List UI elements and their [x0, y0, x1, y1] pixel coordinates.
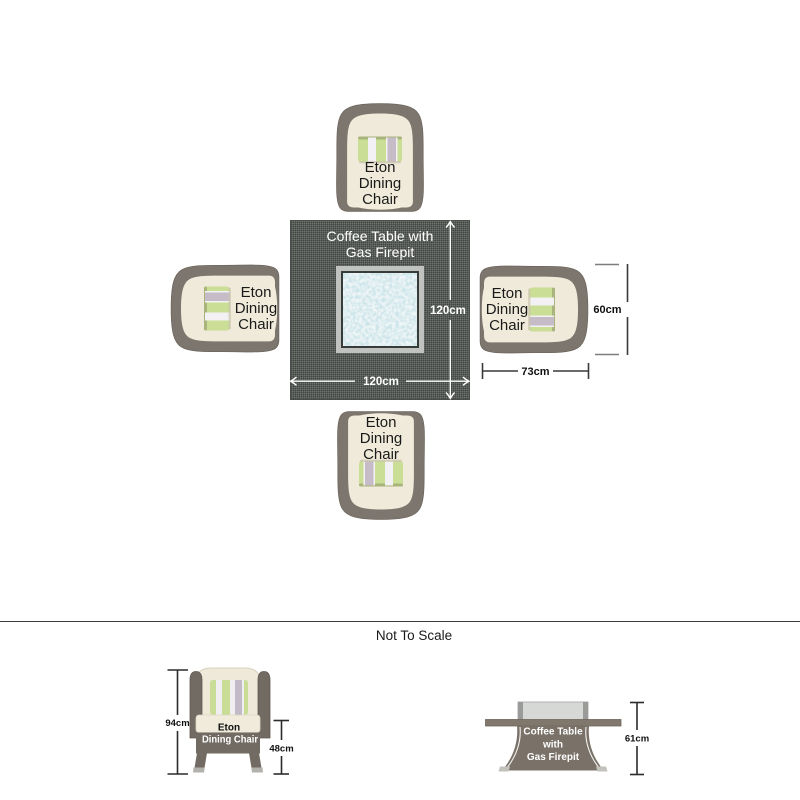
svg-text:61cm: 61cm: [625, 734, 649, 745]
svg-text:73cm: 73cm: [521, 366, 549, 378]
svg-text:Dining Chair: Dining Chair: [202, 734, 258, 746]
svg-text:48cm: 48cm: [269, 744, 293, 755]
svg-text:94cm: 94cm: [165, 718, 189, 729]
svg-text:with: with: [542, 740, 563, 751]
svg-text:120cm: 120cm: [363, 376, 399, 388]
svg-text:Eton: Eton: [218, 723, 240, 734]
svg-text:Gas Firepit: Gas Firepit: [527, 752, 580, 763]
svg-text:60cm: 60cm: [593, 304, 621, 316]
svg-text:Coffee Table: Coffee Table: [523, 727, 583, 738]
